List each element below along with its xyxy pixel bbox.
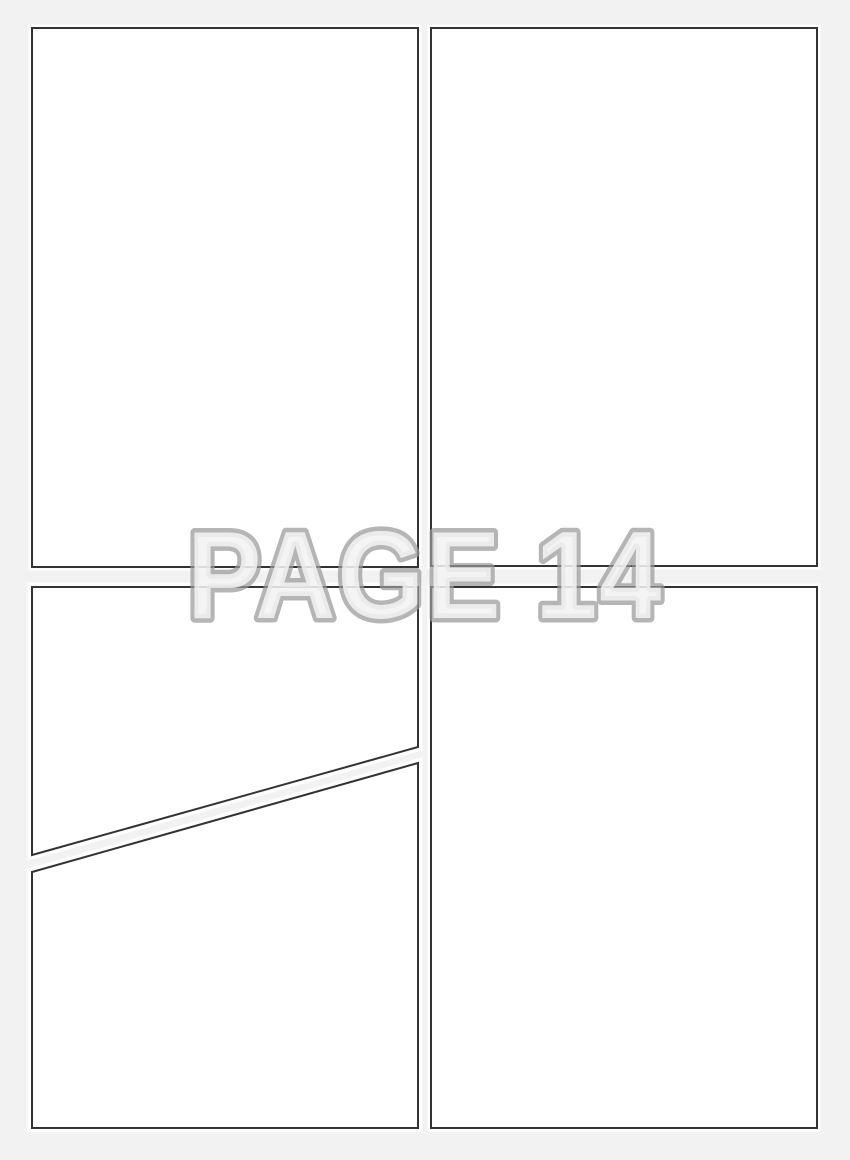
panel-bottom-right	[430, 586, 818, 1129]
panel-bottom-left-group	[31, 586, 419, 1129]
panel-top-right	[430, 27, 818, 567]
panel-top-left	[31, 27, 419, 568]
comic-page-template: PAGE 14	[0, 0, 850, 1160]
